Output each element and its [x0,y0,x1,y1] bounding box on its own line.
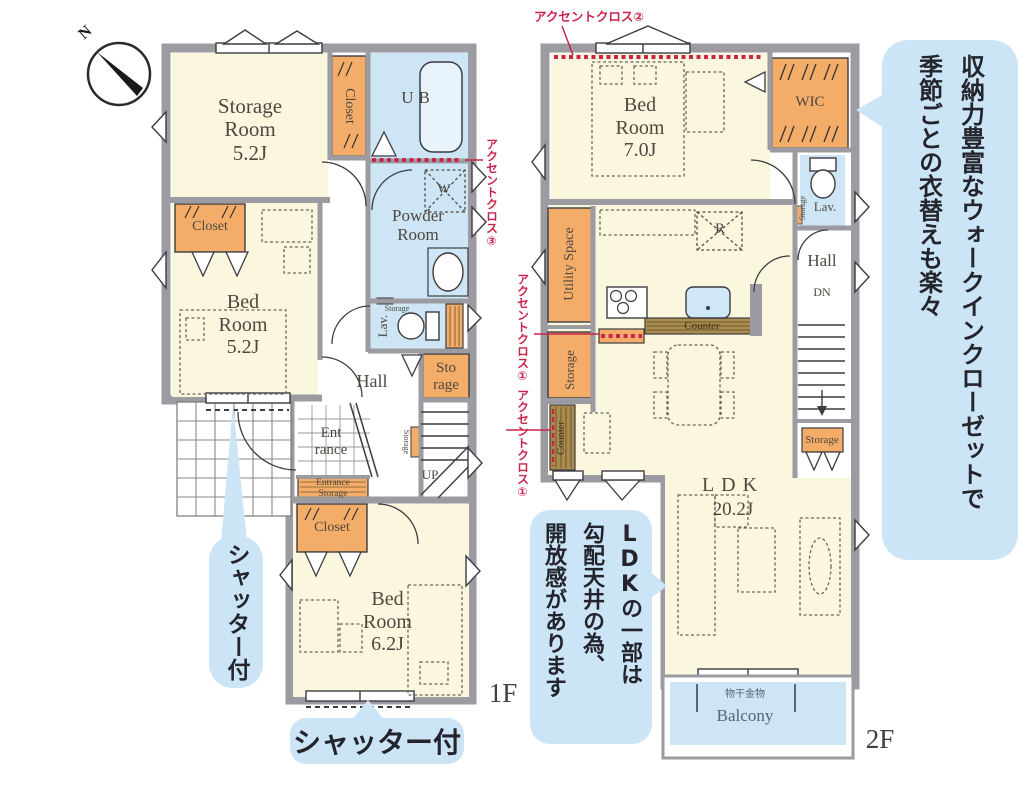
accent-cross-3-label: アクセントクロス③ [482,136,500,250]
ldk-note-line1: LDKの一部は [613,522,645,685]
ldk-note-line2: 勾配天井の為、 [575,522,607,676]
wic-note-bubble: 収納力豊富なウォークインクローゼットで 季節ごとの衣替えも楽々 [882,40,1018,560]
shutter-bottom-text: シャッター付 [293,721,461,761]
accent-cross-1-counter-label: アクセントクロス① [513,388,531,500]
wic-label: WIC [782,90,838,114]
accent-cross-2-label: アクセントクロス② [531,8,647,26]
fridge-label: R [708,218,732,240]
powder-room-label: Powder Room [368,203,468,247]
bath-label: UB [368,86,468,110]
lav2-storage-label: Storage [778,183,828,233]
wic-note-line2: 季節ごとの衣替えも楽々 [912,54,947,318]
bedroom62-label: Bed Room 6.2J [330,582,445,662]
floor1-label: 1F [480,676,526,710]
powder-sink [433,253,463,291]
closet-bottom-label: Closet [300,517,364,539]
wic-note-line1: 収納力豊富なウォークインクローゼットで [954,54,989,510]
washer-label: W [432,180,456,200]
hall2-label: Hall [798,250,846,272]
hall-storage-label: Storage [800,430,844,450]
hall1-label: Hall [342,368,402,394]
entrance-storage-label: Entrance Storage [298,477,368,500]
shutter-left-text: シャッター付 [219,543,253,681]
kitchen-counter-label: Counter [660,318,744,334]
ldk-note-line3: 開放感があります [537,522,569,698]
entrance-label: Ent rance [300,424,362,460]
down-label: DN [800,284,844,302]
bedroom70-label: Bed Room 7.0J [580,88,700,168]
kitchen-sink [686,287,730,318]
wic-note-bubble-tail [856,94,884,128]
storage-room-label: Storage Room 5.2J [180,84,320,176]
accent-cross-1-kitchen-label: アクセントクロス① [513,272,531,384]
closet-mid-label: Closet [176,216,244,238]
compass [88,43,150,105]
shutter-left-bubble: シャッター付 [209,536,263,688]
shutter-bottom-bubble: シャッター付 [290,718,464,764]
stair-storage-label: Storage [381,417,431,467]
ldk-name-label: LDK [690,472,776,498]
floorplan-page: Storage Room 5.2J Closet UB Powder Room … [0,0,1026,788]
balcony-label: Balcony [700,704,790,728]
floor2-label: 2F [856,722,904,756]
laundry-fitting-label: 物干金物 [710,688,780,702]
storage-mid-label: Sto rage [424,356,468,398]
up-label: UP [414,466,446,484]
side-counter-label: Counter [522,398,602,478]
lav1-storage-label: Storage [376,304,418,315]
bedroom52-label: Bed Room 5.2J [183,285,303,365]
ldk-size-label: 20.2J [690,498,776,522]
utility-space-label: Utility Space [520,214,620,314]
ldk-note-bubble: LDKの一部は 勾配天井の為、 開放感があります [530,510,652,744]
